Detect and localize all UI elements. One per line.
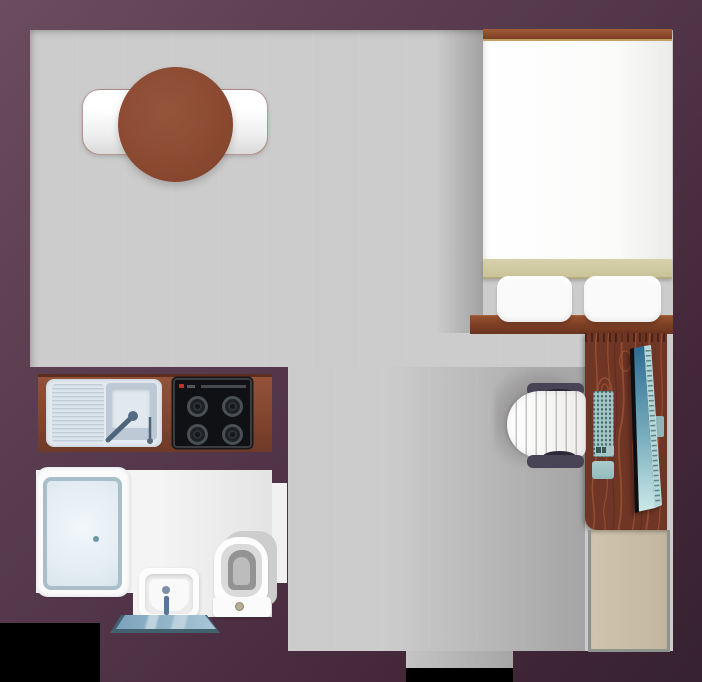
keyboard-key [596,447,601,453]
dining-table [118,67,233,182]
bathroom-sink-bowl [149,579,189,611]
bed-duvet [483,41,672,259]
keyboard-key [602,447,606,453]
keyboard [593,391,614,457]
keyboard-lower-section [595,446,614,455]
bed-footboard [483,29,672,41]
burner [187,424,208,445]
flush-button [235,602,244,611]
transparent-cutout-bottom-left [0,623,100,682]
shower-tray [43,477,122,590]
chair-seat [507,391,586,458]
shower-drain [93,536,99,542]
stove-hob [173,378,252,448]
floor-shadow-bedside [436,30,483,333]
burner [222,424,243,445]
burner [222,396,243,417]
stove-indicator-light [179,384,184,388]
monitor [618,342,666,517]
mouse-pad [592,461,614,479]
burner [187,396,208,417]
stove-control-dash [187,385,195,388]
stove-control-bar [201,385,246,388]
kitchen-faucet [46,379,162,447]
chair-armrest-bottom [527,455,584,468]
toilet-lid-inner [233,557,250,585]
bathroom-faucet [164,596,169,615]
bed-pillow-left [497,276,572,322]
floor-plan [0,0,702,682]
bath-mat [116,615,216,629]
entry-door [406,651,513,668]
headboard-fringe [585,333,667,342]
wardrobe [588,530,670,652]
transparent-cutout-below-door [406,668,513,682]
bed-pillow-right [584,276,661,322]
bathroom-faucet-base [162,586,170,594]
